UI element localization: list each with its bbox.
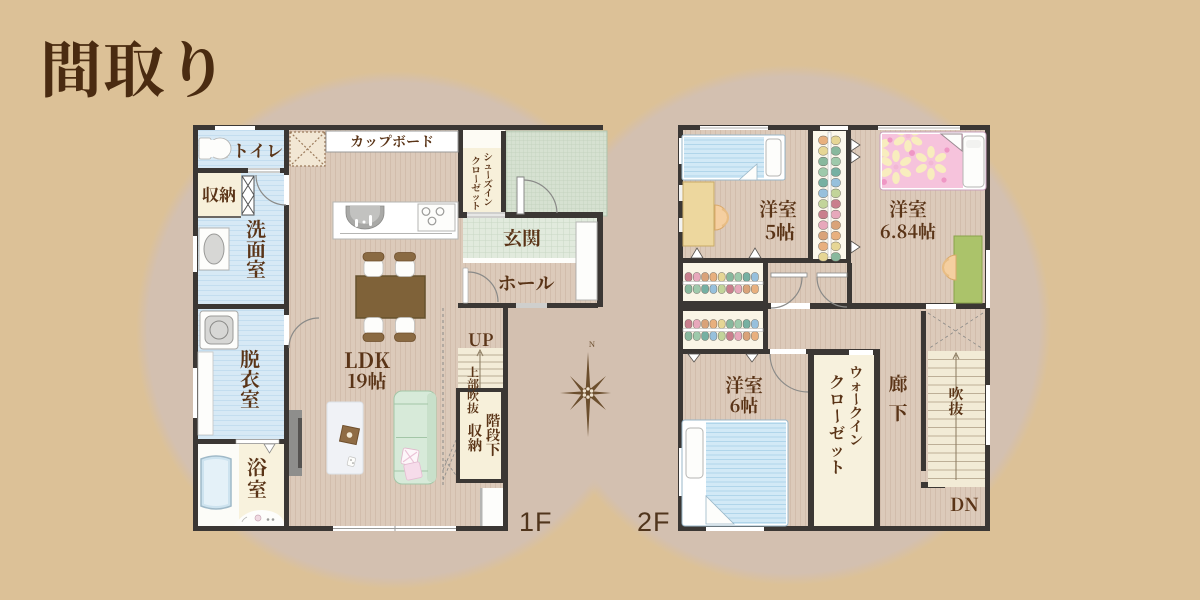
svg-text:N: N — [589, 339, 595, 349]
svg-text:1F: 1F — [519, 507, 553, 537]
svg-text:2F: 2F — [637, 507, 671, 537]
